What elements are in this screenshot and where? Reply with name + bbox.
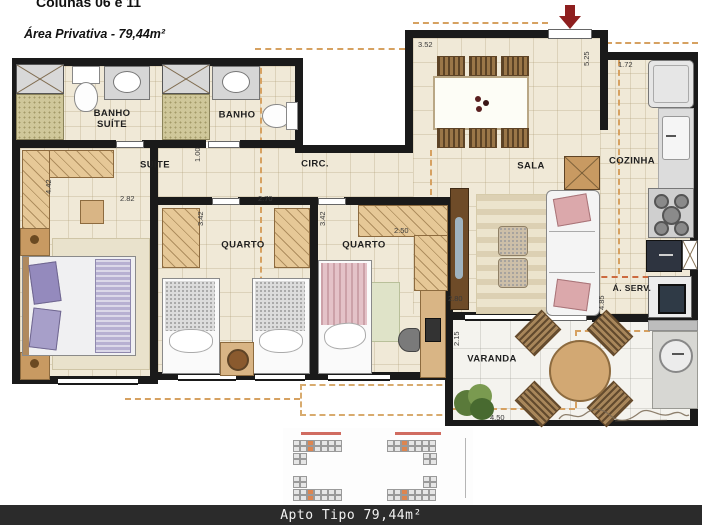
site-plan-caption	[395, 432, 441, 435]
desk-chair	[398, 328, 420, 352]
dim-5-25: 5.25	[582, 38, 591, 66]
dining-chair	[501, 128, 529, 148]
dim-4-42: 4.42	[44, 166, 53, 194]
projection-dashed-line	[413, 22, 548, 24]
single-bed	[252, 278, 310, 374]
burner	[654, 221, 669, 236]
dining-chair	[501, 56, 529, 76]
entrance-arrow-head	[559, 16, 581, 29]
shower-floor-2	[162, 94, 210, 140]
site-plan-block	[293, 476, 342, 501]
suite-wardrobe-left	[22, 150, 50, 240]
sink-basin	[113, 71, 141, 93]
fruit-bowl	[476, 106, 482, 112]
suite-double-bed	[22, 256, 136, 356]
wall	[12, 140, 116, 148]
projection-dashed-box	[300, 384, 452, 416]
sofa-seat-divider	[549, 272, 595, 273]
room-label-cozinha: COZINHA	[609, 157, 655, 168]
sink-basin-2	[222, 71, 250, 93]
dim-2-82: 2.82	[120, 194, 135, 203]
room-label-banho: BANHO	[219, 111, 256, 122]
desk-laptop	[425, 318, 441, 342]
wall	[405, 30, 413, 153]
service-shaft	[682, 240, 698, 270]
bed-pillow	[29, 307, 62, 350]
bed-pillow	[28, 261, 61, 305]
toilet-2-tank	[286, 102, 298, 130]
bed-pillow	[169, 329, 213, 353]
bed-blanket	[321, 263, 367, 325]
nightstand-clock	[227, 349, 249, 371]
sofa	[546, 190, 600, 316]
sofa-seat-divider	[549, 231, 595, 232]
room-label-area-servico: Á. SERV.	[613, 284, 652, 294]
washer-door	[658, 284, 686, 314]
dim-1-00: 1.00	[193, 142, 202, 162]
site-plan-block	[293, 440, 342, 465]
refrigerator-line	[653, 65, 689, 103]
quarto2-wardrobe-right	[414, 235, 448, 291]
bed-blanket	[255, 281, 305, 331]
varanda-round-sink	[659, 339, 693, 373]
bed-blanket	[165, 281, 215, 331]
quarto2-window	[328, 373, 390, 381]
nightstand-lamp	[30, 359, 39, 368]
room-label-banho-suite: BANHO SUÍTE	[94, 109, 131, 131]
wall	[295, 145, 413, 153]
bed-blanket	[95, 259, 131, 353]
pouf	[498, 226, 528, 256]
single-bed	[162, 278, 220, 374]
wall	[600, 52, 690, 60]
dim-4-85: 4.85	[597, 284, 606, 310]
dim-4-50: 4.50	[490, 413, 505, 422]
dim-2-80: 2.80	[448, 294, 463, 303]
burner	[674, 221, 689, 236]
dining-table	[433, 76, 529, 130]
suite-pouf	[80, 200, 104, 224]
washing-machine	[648, 276, 692, 318]
dim-2-50: 2.50	[394, 226, 409, 235]
nightstand-lamp	[30, 235, 39, 244]
dim-3-42-b: 3.42	[318, 200, 327, 226]
sala-varanda-window	[465, 313, 540, 321]
dining-chair	[469, 56, 497, 76]
armchair	[564, 156, 600, 190]
apartment-type-caption: Apto Tipo 79,44m²	[280, 508, 422, 523]
stove-cooktop	[648, 188, 694, 238]
room-label-sala: SALA	[517, 162, 544, 173]
site-key-plan	[283, 428, 473, 505]
wall	[238, 197, 318, 205]
wall	[150, 140, 158, 380]
private-area-label: Área Privativa - 79,44m²	[24, 27, 165, 41]
wall	[600, 30, 608, 130]
quarto1-window-2	[255, 373, 305, 381]
varanda-round-table	[549, 340, 611, 402]
shower-box	[16, 64, 64, 94]
room-label-varanda: VARANDA	[467, 355, 517, 366]
kitchen-sink	[662, 116, 690, 160]
bed-pillow	[323, 321, 367, 351]
projection-dashed-line	[606, 42, 698, 44]
columns-title: Colunas 06 e 11	[36, 0, 141, 10]
quarto1-door	[212, 198, 240, 205]
fruit-bowl	[483, 100, 489, 106]
wall	[344, 197, 453, 205]
site-plan-street-line	[465, 438, 466, 498]
room-label-quarto-2: QUARTO	[342, 241, 385, 252]
pouf	[498, 258, 528, 288]
dim-2-70: 2.70	[258, 194, 273, 203]
sofa-pillow	[553, 193, 591, 226]
shelf	[648, 320, 698, 331]
quarto1-wardrobe-left	[162, 208, 200, 268]
wall	[405, 30, 548, 38]
faucet	[666, 135, 676, 137]
site-plan-caption	[301, 432, 341, 435]
site-plan-block	[387, 440, 437, 465]
faucet	[659, 254, 673, 256]
dim-1-72: 1.72	[618, 60, 633, 69]
shower-box-2	[162, 64, 210, 94]
projection-dashed-line	[125, 398, 300, 400]
quarto1-wardrobe-right	[274, 208, 310, 268]
dim-2-15: 2.15	[452, 322, 461, 346]
dining-chair	[469, 128, 497, 148]
quarto2-single-bed	[318, 260, 372, 374]
sofa-pillow	[553, 279, 591, 311]
tv-panel	[450, 188, 469, 310]
kitchen-sink-2	[646, 240, 682, 272]
room-label-quarto-1: QUARTO	[221, 241, 264, 252]
dim-3-52: 3.52	[418, 40, 433, 49]
faucet	[672, 353, 684, 355]
tv-screen	[455, 217, 463, 279]
wall	[240, 140, 303, 148]
plan-void	[303, 36, 405, 146]
wall	[310, 197, 318, 380]
room-label-circ: CIRC.	[301, 160, 329, 171]
room-label-suite: SUÍTE	[140, 161, 170, 172]
site-plan-block	[387, 476, 437, 501]
bed-headboard	[23, 257, 29, 355]
dining-chair	[437, 128, 465, 148]
bed-pillow	[259, 329, 303, 353]
banho-door	[208, 141, 240, 148]
fruit-bowl	[475, 96, 481, 102]
dining-chair	[437, 56, 465, 76]
dim-3-42-a: 3.42	[196, 200, 205, 226]
suite-window	[58, 377, 138, 385]
shower-floor	[16, 94, 64, 140]
architect-signature	[555, 406, 693, 424]
suite-door	[116, 141, 144, 148]
floor-plan-page: Colunas 06 e 11 Área Privativa - 79,44m²	[0, 0, 702, 525]
footer-caption-bar: Apto Tipo 79,44m²	[0, 505, 702, 525]
refrigerator	[648, 60, 694, 108]
projection-dashed-line	[255, 48, 405, 50]
